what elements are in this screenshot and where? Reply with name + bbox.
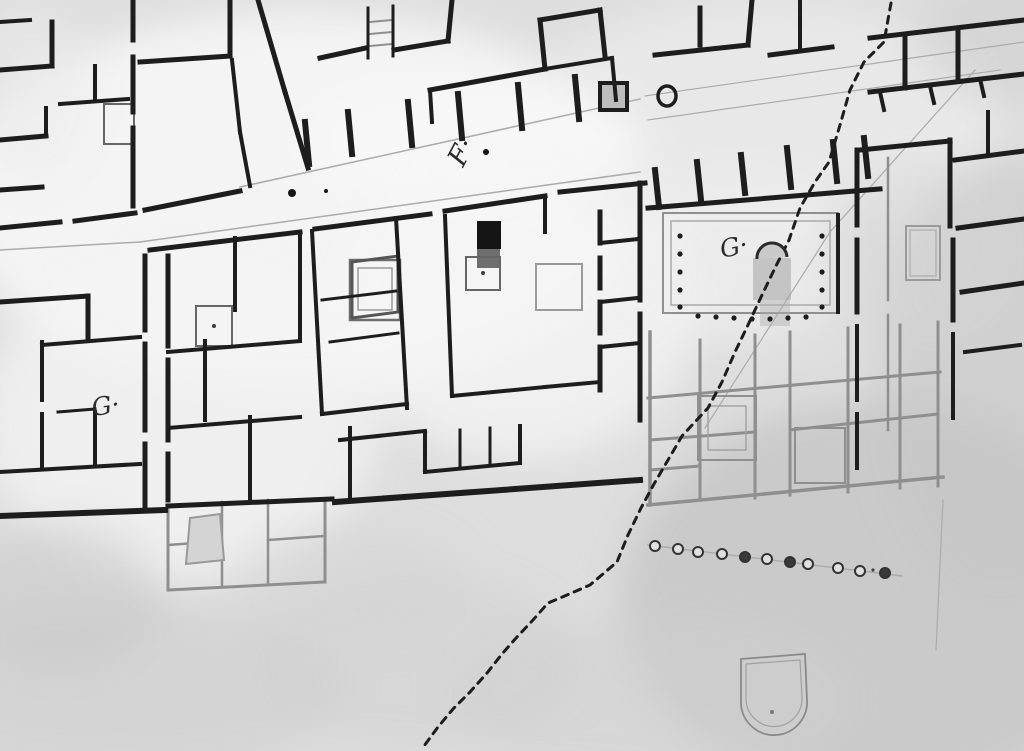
peristyle-column-dot (713, 314, 718, 319)
wall-segment (348, 112, 352, 154)
dark-room-tail (477, 249, 500, 268)
colonnade-column-circle (880, 568, 890, 578)
street-dot (483, 149, 489, 155)
wall-segment (0, 187, 42, 190)
wall-segment (697, 162, 701, 200)
wall-segment (458, 94, 462, 138)
impluvium-dot (481, 271, 485, 275)
peristyle-column-dot (819, 269, 824, 274)
wall-segment (0, 20, 30, 22)
paper-texture (0, 0, 1024, 751)
scanned-plan-page: F·G·G· (0, 0, 1024, 751)
colonnade-column-circle (803, 559, 813, 569)
well-center-dot (770, 710, 774, 714)
colonnade-column-circle (785, 557, 795, 567)
colonnade-small-dot (871, 568, 874, 571)
street-dot (288, 189, 296, 197)
colonnade-column-circle (650, 541, 660, 551)
bath-pool (186, 514, 224, 564)
peristyle-column-dot (819, 287, 824, 292)
shrine-blob-lower (760, 300, 790, 326)
shrine-apse (757, 243, 787, 259)
impluvium-dot (212, 324, 216, 328)
colonnade-column-circle (740, 552, 750, 562)
peristyle-column-dot (677, 233, 682, 238)
peristyle-column-dot (731, 315, 736, 320)
peristyle-column-dot (677, 304, 682, 309)
wall-segment (518, 85, 522, 128)
dark-filled-room (477, 221, 501, 249)
label-g-east: G· (717, 230, 750, 264)
peristyle-column-dot (695, 313, 700, 318)
peristyle-column-dot (819, 304, 824, 309)
wall-segment (833, 142, 837, 181)
peristyle-column-dot (677, 287, 682, 292)
wall-segment (787, 148, 791, 187)
wall-segment (741, 155, 745, 193)
colonnade-column-circle (693, 547, 703, 557)
wall-segment (408, 102, 412, 145)
colonnade-column-circle (673, 544, 683, 554)
colonnade-column-circle (717, 549, 727, 559)
wall-segment (305, 122, 309, 164)
colonnade-column-circle (855, 566, 865, 576)
excavation-plan-map: F·G·G· (0, 0, 1024, 751)
peristyle-column-dot (803, 314, 808, 319)
peristyle-column-dot (785, 315, 790, 320)
street-dot (324, 189, 328, 193)
shrine-blob (753, 258, 791, 300)
wall-segment (430, 90, 432, 122)
peristyle-column-dot (767, 316, 772, 321)
peristyle-column-dot (819, 251, 824, 256)
label-g-west: G· (90, 389, 122, 422)
colonnade-column-circle (762, 554, 772, 564)
peristyle-column-dot (749, 316, 754, 321)
peristyle-column-dot (677, 251, 682, 256)
wall-segment (864, 138, 868, 176)
wall-segment (575, 77, 579, 119)
peristyle-column-dot (819, 233, 824, 238)
wall-segment (655, 170, 659, 207)
peristyle-column-dot (677, 269, 682, 274)
colonnade-column-circle (833, 563, 843, 573)
